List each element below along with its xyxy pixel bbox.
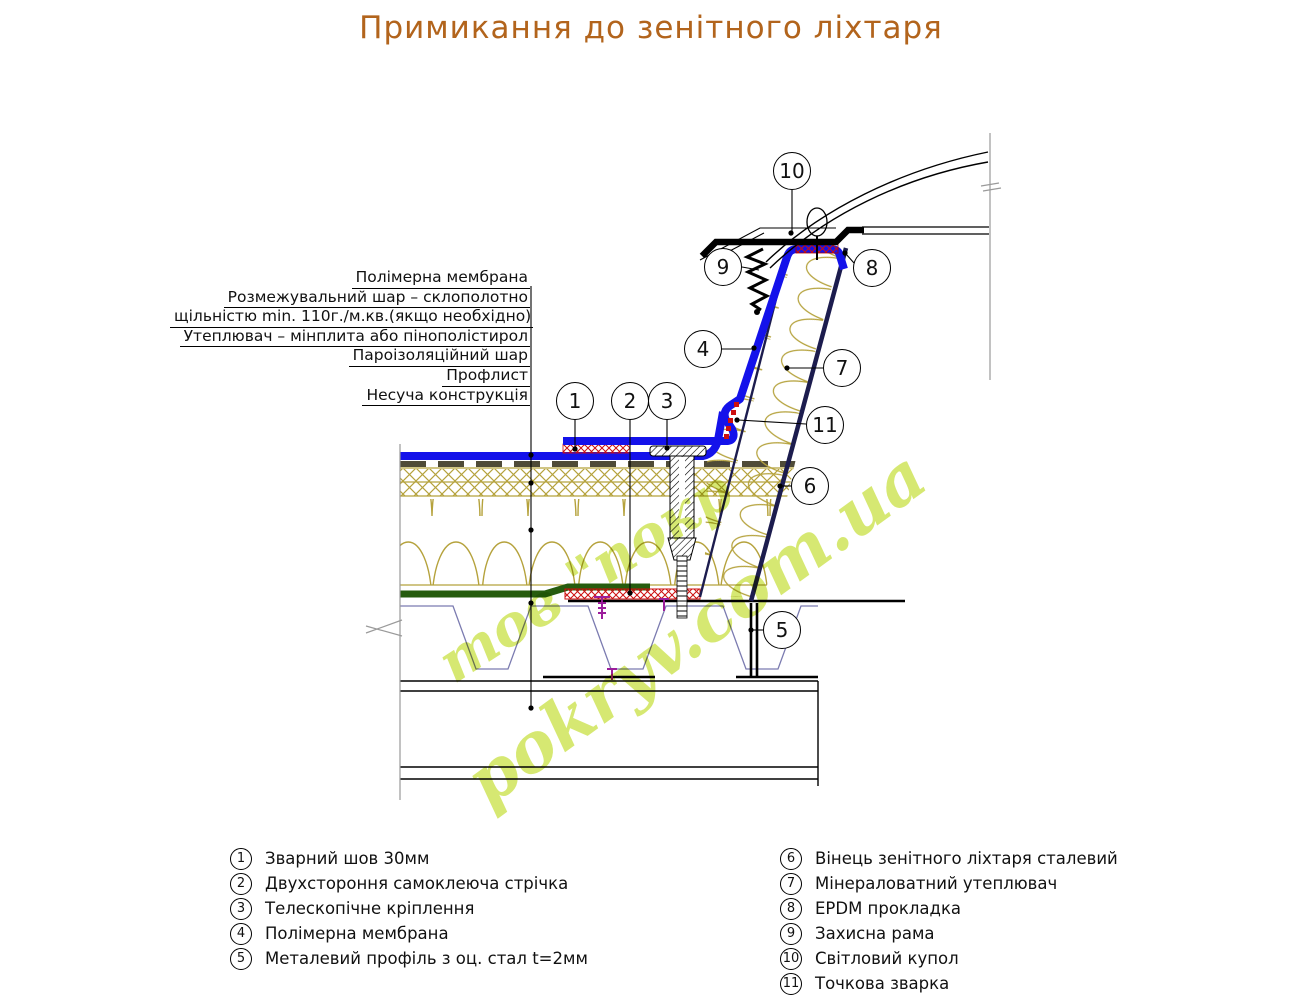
legend-num: 11 [780, 973, 802, 995]
legend-item: 2 Двухстороння самоклеюча стрічка [230, 871, 588, 896]
legend-num: 8 [780, 898, 802, 920]
callout-5: 5 [763, 611, 801, 649]
callout-3: 3 [648, 382, 686, 420]
legend-num: 7 [780, 873, 802, 895]
legend-item: 3 Телескопічне кріплення [230, 896, 588, 921]
legend-item: 8 EPDM прокладка [780, 896, 1118, 921]
legend-item: 4 Полімерна мембрана [230, 921, 588, 946]
callout-6: 6 [791, 467, 829, 505]
beam-lines [400, 681, 818, 786]
legend-label: Двухстороння самоклеюча стрічка [252, 874, 568, 893]
legend-label: Вінець зенітного ліхтаря сталевий [802, 849, 1118, 868]
callout-4: 4 [684, 330, 722, 368]
legend-item: 7 Мінераловатний утеплювач [780, 871, 1118, 896]
legend-right: 6 Вінець зенітного ліхтаря сталевий 7 Мі… [780, 846, 1118, 996]
legend-num: 5 [230, 948, 252, 970]
layer-label: Розмежувальний шар – склополотно [224, 288, 530, 309]
layer-labels: Полімерна мембрана Розмежувальний шар – … [170, 267, 530, 404]
callout-11: 11 [806, 406, 844, 444]
steel-profile [568, 601, 905, 677]
layer-label: щільністю min. 110г./м.кв.(якщо необхідн… [170, 307, 533, 328]
legend-label: EPDM прокладка [802, 899, 961, 918]
screws [594, 597, 669, 680]
layer-label: Несуча конструкція [362, 386, 530, 407]
legend-label: Телескопічне кріплення [252, 899, 474, 918]
protective-frame [747, 249, 767, 310]
legend-label: Захисна рама [802, 924, 935, 943]
callout-8: 8 [853, 249, 891, 287]
legend-num: 10 [780, 948, 802, 970]
legend-item: 9 Захисна рама [780, 921, 1118, 946]
legend-label: Полімерна мембрана [252, 924, 449, 943]
legend-label: Світловий купол [802, 949, 959, 968]
legend-num: 2 [230, 873, 252, 895]
legend-item: 6 Вінець зенітного ліхтаря сталевий [780, 846, 1118, 871]
legend-label: Зварний шов 30мм [252, 849, 429, 868]
legend-label: Точкова зварка [802, 974, 949, 993]
layer-label: Профлист [442, 366, 530, 387]
drawing-page: Примикання до зенітного ліхтаря [0, 0, 1302, 1006]
callout-9: 9 [704, 248, 742, 286]
legend-num: 4 [230, 923, 252, 945]
layer-label: Полімерна мембрана [352, 268, 530, 289]
legend-num: 1 [230, 848, 252, 870]
legend-label: Мінераловатний утеплювач [802, 874, 1057, 893]
layer-label: Пароізоляційний шар [349, 346, 530, 367]
callout-7: 7 [823, 349, 861, 387]
legend-left: 1 Зварний шов 30мм 2 Двухстороння самокл… [230, 846, 588, 971]
legend-num: 6 [780, 848, 802, 870]
legend-item: 5 Металевий профіль з оц. стал t=2мм [230, 946, 588, 971]
legend-label: Металевий профіль з оц. стал t=2мм [252, 949, 588, 968]
legend-item: 11 Точкова зварка [780, 971, 1118, 996]
legend-item: 1 Зварний шов 30мм [230, 846, 588, 871]
layer-label: Утеплювач – мінплита або пінополістирол [180, 327, 530, 348]
legend-item: 10 Світловий купол [780, 946, 1118, 971]
proflist-wave [400, 606, 818, 669]
callout-10: 10 [773, 152, 811, 190]
legend-num: 9 [780, 923, 802, 945]
callout-1: 1 [556, 382, 594, 420]
callout-2: 2 [611, 382, 649, 420]
legend-num: 3 [230, 898, 252, 920]
